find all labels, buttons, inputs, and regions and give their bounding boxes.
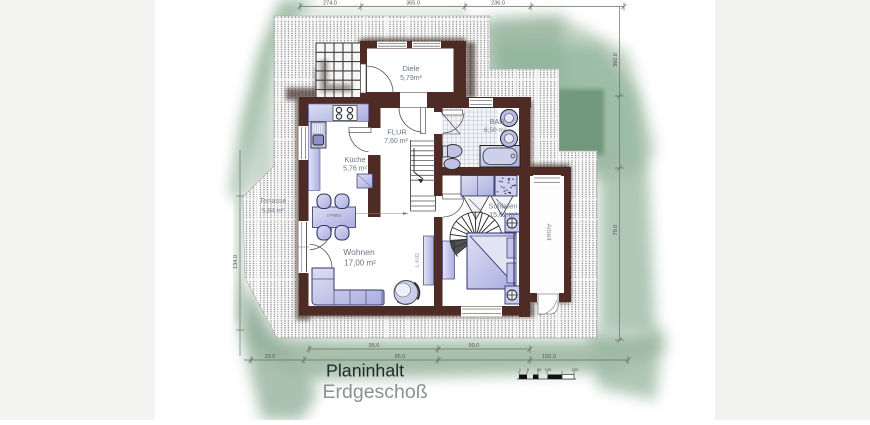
svg-text:5,76 m²: 5,76 m²	[343, 166, 367, 173]
svg-text:29.0: 29.0	[265, 354, 276, 360]
svg-text:70.0: 70.0	[613, 225, 619, 236]
svg-text:Arbeit: Arbeit	[545, 224, 552, 241]
svg-text:7,60 m²: 7,60 m²	[384, 138, 408, 145]
svg-text:2 Plätze: 2 Plätze	[327, 213, 342, 218]
svg-text:365.0: 365.0	[406, 1, 420, 7]
svg-text:6,50 m²: 6,50 m²	[484, 127, 507, 134]
svg-text:Diele: Diele	[402, 64, 419, 73]
svg-text:95.0: 95.0	[369, 343, 380, 349]
svg-text:200: 200	[572, 367, 579, 372]
svg-text:Schlafen: Schlafen	[488, 202, 517, 211]
svg-text:Erdgeschoß: Erdgeschoß	[323, 381, 428, 403]
svg-text:FLUR: FLUR	[387, 128, 407, 137]
svg-text:Wohnen: Wohnen	[343, 247, 375, 257]
svg-text:BAD: BAD	[490, 119, 504, 126]
svg-text:17,00 m²: 17,00 m²	[344, 259, 376, 268]
svg-text:85.0: 85.0	[395, 354, 406, 360]
svg-text:Küche: Küche	[344, 155, 365, 164]
svg-text:15,02 m²: 15,02 m²	[489, 212, 517, 219]
svg-text:150.0: 150.0	[542, 354, 556, 360]
svg-text:274.0: 274.0	[323, 1, 337, 7]
svg-text:90.0: 90.0	[469, 343, 480, 349]
svg-text:Planinhalt: Planinhalt	[326, 361, 404, 381]
svg-text:134.0: 134.0	[233, 255, 239, 269]
svg-text:100: 100	[545, 367, 552, 372]
svg-text:360.0: 360.0	[613, 53, 619, 67]
svg-text:50: 50	[537, 367, 542, 372]
svg-text:L 4.02: L 4.02	[415, 253, 421, 267]
svg-text:5,84 m²: 5,84 m²	[262, 208, 285, 215]
svg-text:Terrasse: Terrasse	[260, 198, 287, 205]
svg-text:5,79m²: 5,79m²	[400, 75, 422, 82]
svg-text:236.0: 236.0	[491, 1, 505, 7]
